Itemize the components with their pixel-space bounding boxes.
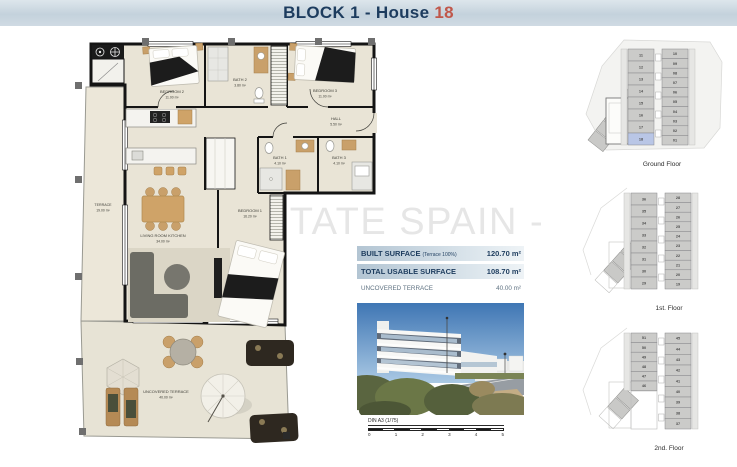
stair-shaft <box>659 255 665 262</box>
stair-shaft <box>656 111 662 118</box>
unit-number: 32 <box>642 245 646 249</box>
unit-number: 35 <box>642 209 646 213</box>
unit-number: 27 <box>676 206 680 210</box>
unit-number: 39 <box>676 401 680 405</box>
unit-number: 23 <box>676 244 680 248</box>
balcony-strip <box>621 49 627 145</box>
room-label-bedroom3: BEDROOM 3 <box>313 88 338 93</box>
unit-number: 10 <box>673 52 677 56</box>
wardrobe <box>270 195 283 240</box>
scale-segment <box>382 428 396 431</box>
unit-number: 45 <box>676 337 680 341</box>
page-title: BLOCK 1 - House18 <box>283 3 454 23</box>
unit-number: 50 <box>642 346 646 350</box>
floor-plan: BEDROOM 2 11.00 m² BATH 2 3.80 m² BEDROO… <box>58 30 392 462</box>
room-area-terrace: 19.00 m² <box>96 209 110 213</box>
unit-number: 36 <box>642 197 646 201</box>
scale-segment <box>395 428 409 431</box>
stair-shaft <box>656 73 662 80</box>
balcony-strip <box>692 193 698 289</box>
room-area-hall: 5.50 m² <box>330 123 342 127</box>
site-plan-label: 2nd. Floor <box>654 445 684 452</box>
balcony-strip <box>689 49 695 145</box>
bed-bedroom2 <box>143 43 206 87</box>
room-label-hall: HALL <box>331 116 342 121</box>
scale-ticks: 012345 <box>368 432 504 437</box>
daybed <box>249 413 298 443</box>
unit-number: 18 <box>639 137 643 141</box>
unit-number: 06 <box>673 91 677 95</box>
towel <box>126 400 136 418</box>
site-plan-1st-floor: 363534333231302928272625242322212019 1st… <box>581 180 737 326</box>
unit-number: 01 <box>673 139 677 143</box>
stair-shaft <box>659 338 665 345</box>
surface-row: BUILT SURFACE(Terrace 100%)120.70 m² <box>357 246 524 261</box>
scale-tick: 2 <box>421 432 424 437</box>
unit-number: 47 <box>642 375 646 379</box>
room-area-bath1: 4.10 m² <box>274 162 286 166</box>
unit-number: 02 <box>673 129 677 133</box>
scale-label: DIN A3 (1/75) <box>368 418 504 426</box>
unit-number: 22 <box>676 254 680 258</box>
unit-number: 26 <box>676 215 680 219</box>
stair-shaft <box>656 92 662 99</box>
unit-number: 28 <box>676 196 680 200</box>
sofa-area <box>128 248 230 322</box>
unit-number: 40 <box>676 390 680 394</box>
room-label-bedroom2: BEDROOM 2 <box>160 89 185 94</box>
room-area-bedroom3: 11.00 m² <box>318 95 332 99</box>
surface-row-value: 40.00 m² <box>496 285 524 292</box>
stair-shaft <box>659 357 665 364</box>
unit-number: 21 <box>676 263 680 267</box>
surface-row-label: TOTAL USABLE SURFACE <box>357 267 456 276</box>
room-label-terrace: TERRACE <box>94 203 112 207</box>
wardrobe <box>271 46 287 105</box>
site-plan-2nd-floor: 515049484746454443424140393837 2nd. Floo… <box>581 320 737 466</box>
dining-table <box>142 188 184 231</box>
room-area-uncovered-terrace: 40.00 m² <box>159 396 173 400</box>
stair-shaft <box>659 198 665 205</box>
unit-number: 30 <box>642 269 646 273</box>
kitchen-corner-unit <box>92 45 124 83</box>
scale-tick: 3 <box>448 432 451 437</box>
unit-number: 11 <box>639 53 643 57</box>
room-label-bath2: BATH 2 <box>233 77 247 82</box>
room-area-bath2: 3.80 m² <box>234 84 246 88</box>
unit-number: 38 <box>676 411 680 415</box>
bed-bedroom3 <box>288 43 356 83</box>
scale-tick: 5 <box>501 432 504 437</box>
unit-number: 03 <box>673 119 677 123</box>
room-area-bedroom1: 16.20 m² <box>243 215 257 219</box>
building-photo <box>357 303 524 415</box>
scale-bar: DIN A3 (1/75) 012345 <box>368 418 504 437</box>
unit-number: 05 <box>673 100 677 104</box>
title-bar: BLOCK 1 - House18 <box>0 0 737 26</box>
room-area-bedroom2: 11.00 m² <box>165 96 179 100</box>
scale-segment <box>477 428 491 431</box>
diagonal-units <box>599 388 639 429</box>
scale-tick: 4 <box>475 432 478 437</box>
unit-number: 12 <box>639 65 643 69</box>
scale-segment <box>463 428 477 431</box>
title-text: BLOCK 1 - House <box>283 3 429 22</box>
unit-number: 46 <box>642 384 646 388</box>
surface-row: TOTAL USABLE SURFACE108.70 m² <box>357 264 524 279</box>
unit-number: 17 <box>639 125 643 129</box>
unit-number: 20 <box>676 273 680 277</box>
scale-segment <box>450 428 464 431</box>
unit-number: 07 <box>673 81 677 85</box>
surface-row-label: BUILT SURFACE <box>357 249 420 258</box>
unit-number: 16 <box>639 113 643 117</box>
scale-segments <box>368 428 504 431</box>
towel <box>108 394 118 412</box>
surface-row-label: UNCOVERED TERRACE <box>357 285 433 292</box>
site-plan-ground-floor: 111213141516171810090807060504030201 Gro… <box>578 36 734 182</box>
unit-number: 49 <box>642 355 646 359</box>
tv-unit <box>214 258 222 298</box>
room-label-bath1: BATH 1 <box>273 155 287 160</box>
unit-number: 51 <box>642 336 646 340</box>
room-label-bath3: BATH 3 <box>332 155 346 160</box>
surface-table: BUILT SURFACE(Terrace 100%)120.70 m²TOTA… <box>357 246 524 297</box>
unit-number: 42 <box>676 369 680 373</box>
balcony-strip <box>624 193 630 289</box>
unit-number: 08 <box>673 71 677 75</box>
scale-segment <box>368 428 382 431</box>
unit-number: 31 <box>642 257 646 261</box>
unit-number: 37 <box>676 422 680 426</box>
surface-row: UNCOVERED TERRACE40.00 m² <box>357 282 524 294</box>
unit-number: 19 <box>676 283 680 287</box>
surface-row-value: 120.70 m² <box>487 249 524 258</box>
unit-number: 29 <box>642 281 646 285</box>
surface-row-note: (Terrace 100%) <box>422 252 456 258</box>
room-label-bedroom1: BEDROOM 1 <box>238 208 263 213</box>
site-plan-label: 1st. Floor <box>655 305 683 312</box>
stair-shaft <box>659 217 665 224</box>
unit-number: 48 <box>642 365 646 369</box>
stair-shaft <box>659 414 665 421</box>
stair-shaft <box>659 395 665 402</box>
stair-shaft <box>659 274 665 281</box>
scale-segment <box>409 428 423 431</box>
unit-number: 33 <box>642 233 646 237</box>
scale-segment <box>490 428 504 431</box>
stair-shaft <box>659 236 665 243</box>
unit-number: 15 <box>639 101 643 105</box>
house-number: 18 <box>434 3 454 22</box>
roof-terrace-outline <box>631 391 657 429</box>
unit-number: 09 <box>673 62 677 66</box>
room-label-living: LIVING ROOM KITCHEN <box>140 233 185 238</box>
balcony-strip <box>692 333 698 429</box>
stair-shaft <box>659 376 665 383</box>
balcony-strip <box>624 333 630 391</box>
closet <box>206 138 235 189</box>
stair-shaft <box>656 130 662 137</box>
scale-tick: 0 <box>368 432 371 437</box>
site-plan-label: Ground Floor <box>643 161 682 168</box>
room-area-bath3: 4.10 m² <box>333 162 345 166</box>
surface-row-value: 108.70 m² <box>487 267 524 276</box>
daybed <box>246 340 294 366</box>
scale-tick: 1 <box>395 432 398 437</box>
scale-segment <box>422 428 436 431</box>
room-label-uncovered-terrace: UNCOVERED TERRACE <box>143 389 189 394</box>
extractor-fan-icon <box>111 48 120 57</box>
room-area-living: 34.00 m² <box>156 240 170 244</box>
unit-number: 25 <box>676 225 680 229</box>
unit-number: 41 <box>676 379 680 383</box>
unit-number: 13 <box>639 77 643 81</box>
stair-shaft <box>656 54 662 61</box>
unit-number: 43 <box>676 358 680 362</box>
scale-segment <box>436 428 450 431</box>
